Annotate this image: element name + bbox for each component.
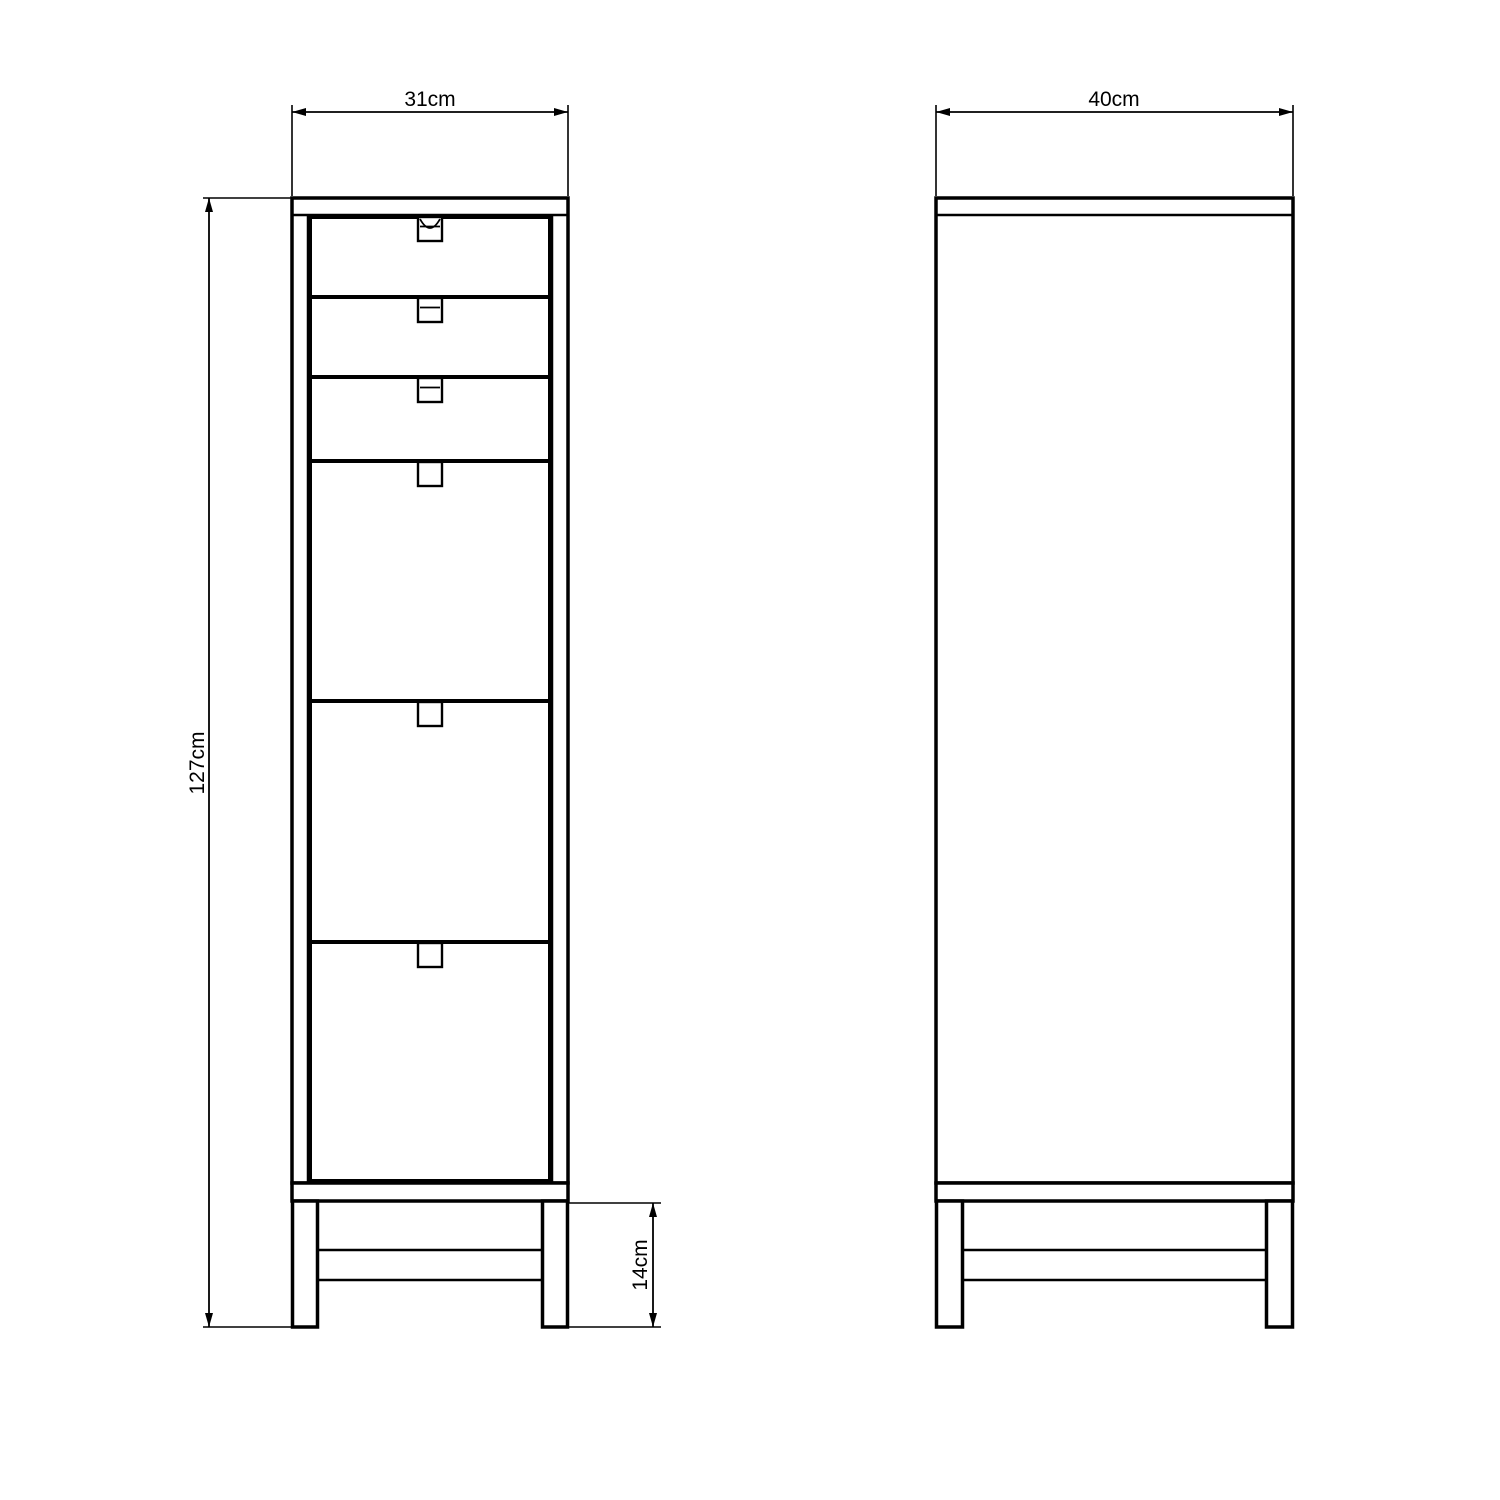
side-stretcher-rail [963, 1250, 1267, 1280]
front-leg-height-dimension: 14cm [568, 1203, 661, 1327]
arrowhead-down-icon [649, 1313, 657, 1327]
front-left-leg [293, 1201, 318, 1327]
front-right-leg [543, 1201, 568, 1327]
arrowhead-right-icon [554, 108, 568, 116]
front-width-label: 31cm [404, 88, 455, 111]
side-depth-label: 40cm [1088, 88, 1139, 111]
drawer-handle-icon [418, 702, 442, 726]
arrowhead-left-icon [936, 108, 950, 116]
bottom-board [936, 1183, 1293, 1201]
technical-drawing-svg: 31cm [0, 0, 1500, 1500]
front-leg-height-label: 14cm [629, 1239, 652, 1290]
front-stretcher-rail [318, 1250, 543, 1280]
front-height-label: 127cm [186, 731, 209, 794]
side-depth-dimension: 40cm [936, 88, 1293, 196]
arrowhead-up-icon [649, 1203, 657, 1217]
arrowhead-up-icon [205, 198, 213, 212]
front-width-dimension: 31cm [292, 88, 568, 196]
front-height-dimension: 127cm [186, 198, 292, 1327]
arrowhead-down-icon [205, 1313, 213, 1327]
drawer-front-4 [310, 461, 550, 701]
side-base [936, 1183, 1293, 1327]
drawer-front-5 [310, 701, 550, 942]
drawer-handle-icon [418, 462, 442, 486]
arrowhead-right-icon [1279, 108, 1293, 116]
drawer-front-6 [310, 942, 550, 1181]
side-cabinet-body [936, 198, 1293, 1183]
bottom-board [292, 1183, 568, 1201]
side-left-leg [937, 1201, 963, 1327]
front-base [292, 1183, 568, 1327]
furniture-dimension-drawing: 31cm [0, 0, 1500, 1500]
side-panel [936, 198, 1293, 1183]
front-view: 31cm [186, 88, 661, 1327]
drawer-handle-icon [418, 943, 442, 967]
front-cabinet-body [292, 198, 568, 1183]
arrowhead-left-icon [292, 108, 306, 116]
drawer-handle-icon [418, 217, 442, 241]
side-right-leg [1267, 1201, 1293, 1327]
drawer-handle-icon [418, 298, 442, 322]
drawer-handle-icon [418, 378, 442, 402]
side-view: 40cm [936, 88, 1293, 1327]
